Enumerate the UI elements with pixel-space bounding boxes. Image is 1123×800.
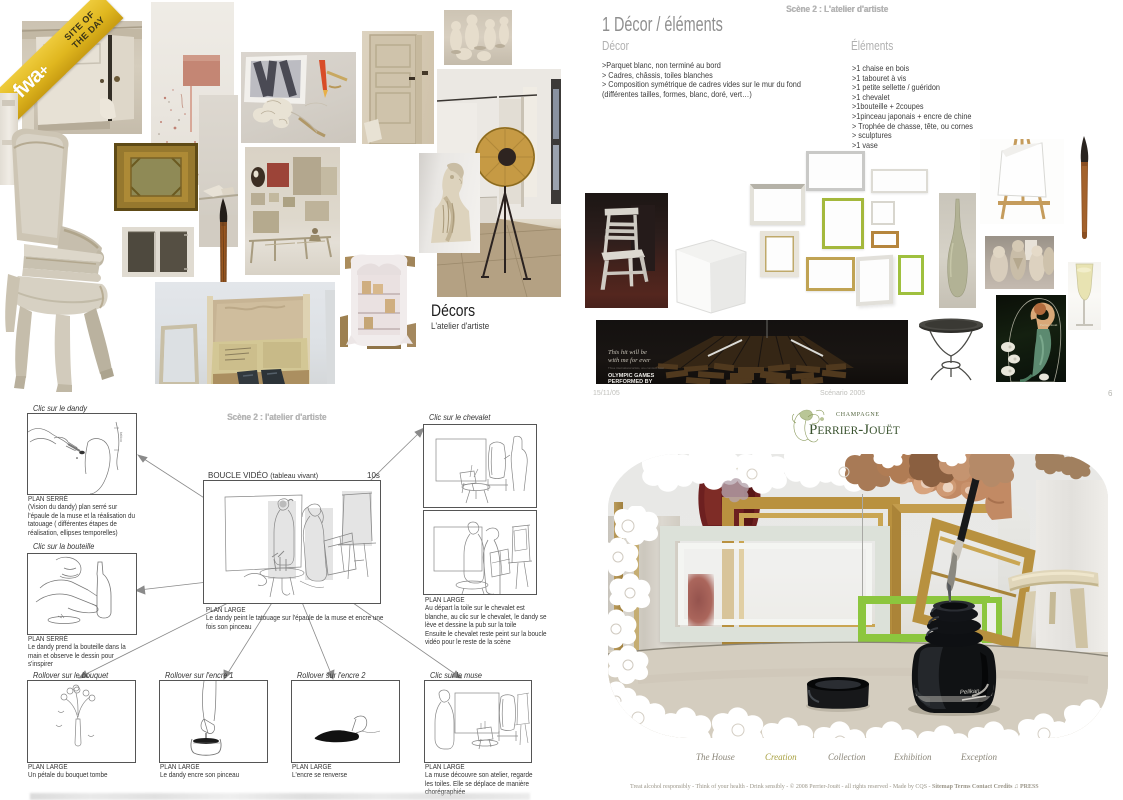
svg-text:CHAMPAGNE: CHAMPAGNE — [836, 412, 880, 418]
svg-text:tattoo: tattoo — [119, 432, 124, 443]
svg-text:with me for ever: with me for ever — [608, 357, 651, 364]
svg-text:Perrier-Jouët: Perrier-Jouët — [1040, 323, 1058, 327]
svg-text:PERFORMED BY: PERFORMED BY — [608, 379, 653, 384]
svg-text:Three international artists, o: Three international artists, one common … — [608, 366, 664, 370]
svg-text:PERRIER-JOUËT: PERRIER-JOUËT — [809, 422, 900, 438]
svg-text:This hit will be: This hit will be — [608, 349, 647, 356]
